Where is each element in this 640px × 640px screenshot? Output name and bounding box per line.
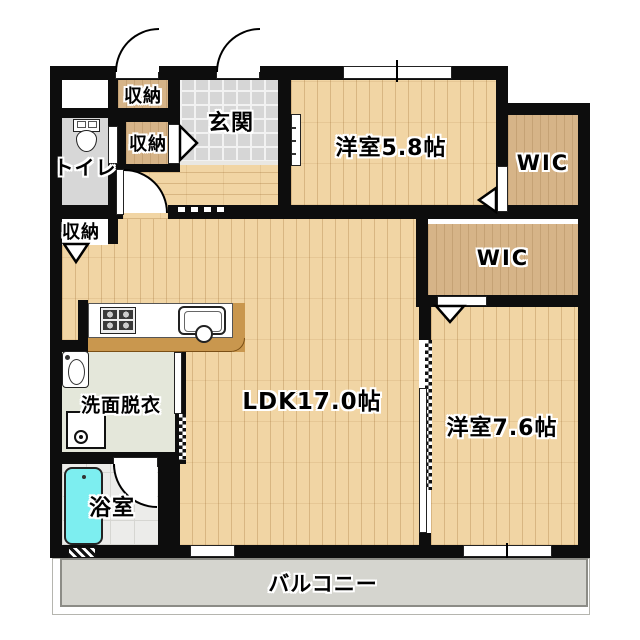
- wic-lower-door-marker: [434, 306, 466, 324]
- label-storage-top: 収納: [124, 82, 162, 108]
- wic-lower-door-leaf: [437, 296, 487, 306]
- storage-entrance-door-marker: [180, 123, 200, 163]
- stove-icon: [100, 307, 136, 334]
- window-room58-mullion: [396, 60, 398, 82]
- window-room76-mullion: [506, 543, 508, 559]
- wic-upper-door-marker: [477, 186, 498, 214]
- label-western-room-7-6: 洋室7.6帖: [447, 410, 558, 442]
- hall-ldk-door-leaf: [116, 169, 124, 215]
- pipe-space-floor: [62, 80, 108, 108]
- wic-upper-door-leaf: [497, 166, 508, 212]
- window-ldk-balcony: [190, 545, 235, 557]
- wall-outer-left: [50, 66, 62, 558]
- storage-top-door-arc: [115, 28, 159, 72]
- label-bathroom: 浴室: [89, 490, 135, 522]
- label-entrance: 玄関: [208, 105, 254, 137]
- entrance-sill-dashes: [178, 207, 228, 212]
- wall-entrance-right: [278, 66, 291, 206]
- floor-plan: 収納 収納 トイレ 玄関 収納 洋室5.8帖 WIC WIC LDK17.0帖 …: [0, 0, 640, 640]
- label-storage-hall: 収納: [62, 218, 100, 244]
- toilet-icon: [72, 119, 102, 153]
- washroom-door-leaf: [174, 352, 182, 414]
- kitchen-faucet-icon: [195, 325, 213, 343]
- storage-hall-door-marker: [62, 244, 90, 264]
- label-wic-lower: WIC: [477, 246, 529, 270]
- label-wic-upper: WIC: [517, 151, 569, 175]
- wall-divider-upper: [419, 307, 431, 340]
- storage-entrance-door-leaf: [168, 124, 180, 164]
- washbasin-icon: [62, 351, 89, 388]
- label-toilet: トイレ: [54, 152, 117, 181]
- wall-outer-right: [578, 103, 590, 558]
- label-ldk: LDK17.0帖: [242, 382, 381, 416]
- label-storage-entrance: 収納: [129, 130, 167, 156]
- washroom-door-track: [179, 414, 186, 460]
- wall-bathroom-right: [158, 452, 180, 558]
- entrance-door-arc: [216, 28, 260, 72]
- vent-icon: [68, 547, 96, 558]
- label-western-room-5-8: 洋室5.8帖: [336, 130, 447, 162]
- wall-wic-upper-top: [496, 103, 590, 115]
- shoe-cabinet-icon: [291, 114, 301, 166]
- counter-trim-bottom: [88, 338, 245, 352]
- label-balcony: バルコニー: [268, 568, 378, 598]
- wall-divider-lower: [419, 533, 431, 545]
- wall-toilet-top: [50, 108, 118, 118]
- wall-wic-lower-left: [416, 219, 428, 307]
- label-washroom: 洗面脱衣: [81, 391, 161, 418]
- ldk-room76-sliding-leaf: [419, 388, 427, 533]
